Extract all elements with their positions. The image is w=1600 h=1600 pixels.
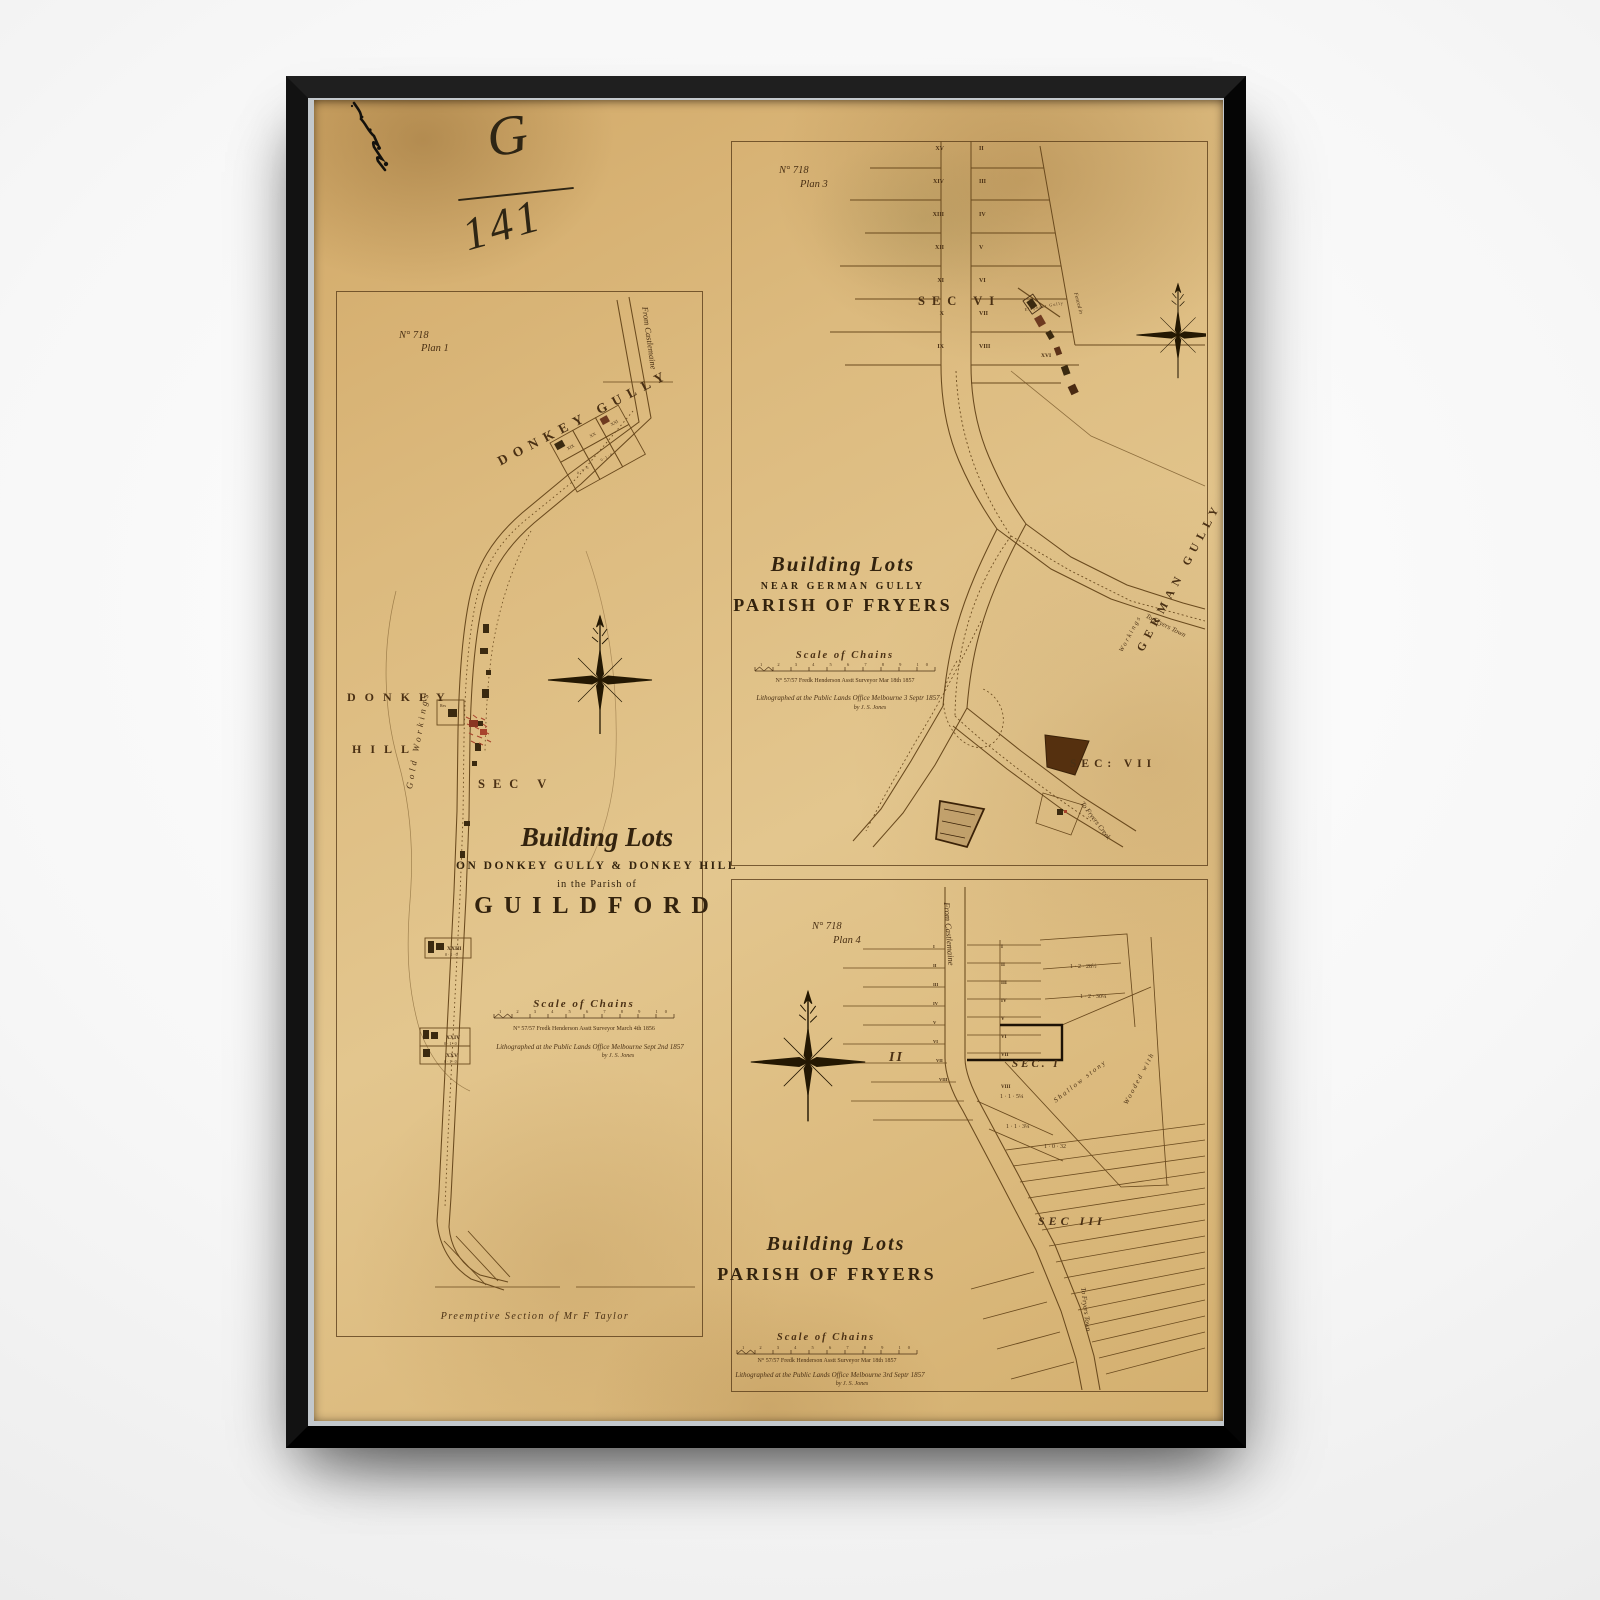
plan1-title-line3: in the Parish of: [557, 879, 637, 890]
plan3-lot-label: III: [979, 179, 986, 185]
plan1-sheet-plan: Plan 1: [421, 343, 449, 354]
plan4-lot-viii-label: VIII: [1001, 1085, 1010, 1090]
plan3-lot-xvi-label: XVI: [1041, 353, 1051, 359]
scale-ruler-numbers: 1 2 3 4 5 6 7 8 9 10: [760, 662, 929, 667]
plan3-sheet-number: N° 718: [779, 165, 809, 176]
plan3-sec-vii-label: SEC: VII: [1070, 758, 1156, 770]
plan4-lot-label: VIII: [939, 1077, 948, 1082]
plan1-sec-v-label: SEC V: [478, 777, 554, 792]
lot-xxiv-acreage: 0 · 1 · 0: [444, 1041, 457, 1046]
plan4-acreage: 1 · 1 · 3¼: [1006, 1124, 1030, 1130]
plan3-scale-label: Scale of Chains: [796, 650, 894, 661]
plan3-map-drawing: Elephant Gully XVI: [731, 141, 1206, 864]
plan4-lot-label: V: [1001, 1017, 1005, 1022]
plan3-survey-note: N° 57/57 Fredk Henderson Asstt Surveyor …: [775, 678, 914, 684]
plan4-lot-label: VI: [933, 1039, 938, 1044]
plan4-roads: [945, 887, 1100, 1390]
cluster-lot-label: XX: [589, 431, 598, 439]
plan3-lot-label: IX: [930, 344, 944, 350]
plan4-lot-label: V: [933, 1020, 936, 1025]
cluster-lot-label: XXI: [610, 418, 620, 426]
plan4-acreage: 1 · 2 · 30¼: [1080, 994, 1107, 1000]
scale-ruler-numbers: 1 2 3 4 5 6 7 8 9 10: [742, 1345, 911, 1350]
plan4-lot-label: IV: [1001, 999, 1007, 1004]
plan3-lot-label: XII: [930, 245, 944, 251]
compass-rose-icon: [1136, 284, 1206, 378]
compass-rose-icon: [548, 616, 652, 734]
plan3-lot-label: VIII: [979, 344, 990, 350]
plan4-lot-label: I: [1001, 945, 1003, 950]
plan1-hill-label: HILL: [352, 742, 418, 757]
plan4-acreage: 1 · 0 · 32: [1044, 1144, 1066, 1150]
plan3-title-name: PARISH OF FRYERS: [733, 595, 952, 616]
plan1-title-script: Building Lots: [521, 822, 673, 853]
plan4-title-name: PARISH OF FRYERS: [717, 1264, 936, 1285]
plan4-big-ii-label: II: [889, 1050, 904, 1066]
plan4-title-script: Building Lots: [767, 1233, 906, 1256]
plan4-left-streets: [843, 949, 1074, 1379]
plan4-bold-lot-outline: [967, 1025, 1062, 1060]
plan3-sec6-grid: [830, 141, 1205, 486]
plan1-preemptive-note: Preemptive Section of Mr F Taylor: [441, 1311, 629, 1322]
plan3-lot-label: XI: [930, 278, 944, 284]
plan1-sheet-number: N° 718: [399, 330, 429, 341]
lot-xxv-acreage: 0 · 1 · 0: [444, 1059, 457, 1064]
plan3-scale-ruler: 1 2 3 4 5 6 7 8 9 10: [750, 661, 940, 679]
plan1-litho-by: by J. S. Jones: [602, 1053, 635, 1059]
plan1-survey-note: N° 57/57 Fredk Henderson Asstt Surveyor …: [513, 1026, 655, 1032]
plan3-lot-label: VII: [979, 311, 988, 317]
plan3-lot-label: VI: [979, 278, 986, 284]
plan4-sheet-plan: Plan 4: [833, 935, 861, 946]
plan3-lot-label: XIV: [930, 179, 944, 185]
plan3-sheet-plan: Plan 3: [800, 179, 828, 190]
ink-blot: [346, 100, 418, 185]
plan4-lot-label: II: [933, 963, 937, 968]
plan1-scale-ruler: 1 2 3 4 5 6 7 8 9 10: [489, 1008, 679, 1026]
plan4-map-drawing: [731, 879, 1206, 1390]
plan4-litho-note: Lithographed at the Public Lands Office …: [735, 1371, 924, 1379]
plan3-lot-label: V: [979, 245, 983, 251]
plan4-lot-label: IV: [933, 1001, 938, 1006]
plan3-title-line2: NEAR GERMAN GULLY: [761, 581, 926, 592]
plan4-lot-label: III: [1001, 981, 1007, 986]
plan4-acreage: 1 · 2 · 28½: [1070, 964, 1097, 970]
plan3-title-script: Building Lots: [771, 552, 915, 577]
lot-xxiii-acreage: 0 · 1 · 0: [445, 952, 458, 957]
plan4-lot-label: III: [933, 982, 938, 987]
plan4-survey-note: N° 57/57 Fredk Henderson Asstt Surveyor …: [757, 1358, 896, 1364]
plan3-litho-by: by J. S. Jones: [854, 705, 887, 711]
plan1-litho-note: Lithographed at the Public Lands Office …: [496, 1043, 684, 1051]
plan3-lot-label: XV: [930, 146, 944, 152]
plan3-lot-label: IV: [979, 212, 986, 218]
plan4-lot-label: VII: [936, 1058, 943, 1063]
plan4-lot-label: I: [933, 944, 935, 949]
plan4-sec-i-label: SEC. I: [1012, 1058, 1061, 1070]
plan1-scale-label: Scale of Chains: [533, 998, 635, 1010]
plan1-donkey-label: DONKEY: [347, 690, 454, 705]
cluster-lot-label: XIX: [566, 443, 576, 452]
plan4-lot-label: VI: [1001, 1035, 1007, 1040]
plan1-title-line2: ON DONKEY GULLY & DONKEY HILL: [456, 860, 738, 872]
plan1-title-name: GUILDFORD: [474, 893, 720, 920]
plan4-scale-label: Scale of Chains: [777, 1332, 875, 1343]
plan4-lot-label: VII: [1001, 1053, 1009, 1058]
plan3-sec-vi-label: SEC VI: [918, 294, 1001, 309]
plan4-litho-by: by J. S. Jones: [836, 1381, 869, 1387]
plan3-reserves: [936, 735, 1089, 847]
cluster-lot-acreage: 0 · 1 · 0: [576, 465, 590, 476]
handwritten-file-letter: G: [483, 101, 532, 170]
plan3-lot-label: II: [979, 146, 984, 152]
plan4-sheet-number: N° 718: [812, 921, 842, 932]
plan3-litho-note: Lithographed at the Public Lands Office …: [756, 694, 939, 702]
compass-rose-icon: [751, 992, 865, 1122]
plan4-sec-iii-label: SEC III: [1038, 1214, 1106, 1229]
plan3-lot-label: XIII: [930, 212, 944, 218]
plan4-acreage: 1 · 1 · 5¼: [1000, 1094, 1024, 1100]
plan4-lot-label: II: [1001, 963, 1005, 968]
plan3-lot-label: X: [930, 311, 944, 317]
